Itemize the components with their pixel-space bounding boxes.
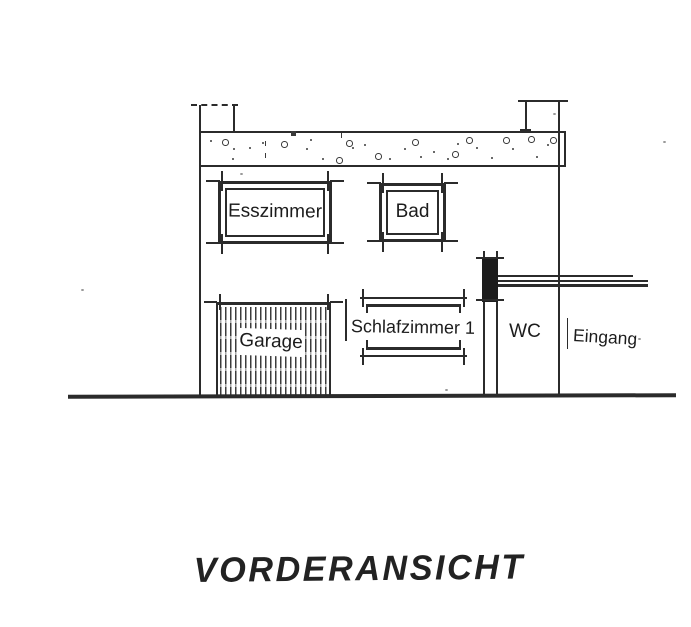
esszimmer-label: Esszimmer [222, 199, 328, 224]
schlafzimmer-window-corner-stub [366, 340, 368, 349]
wall-left-line [199, 105, 201, 397]
wall-right-line [558, 101, 560, 397]
stipple-mark [352, 147, 354, 149]
stipple-mark [336, 157, 343, 164]
stipple-mark [233, 148, 235, 150]
stipple-mark [528, 136, 535, 143]
window-tick [382, 173, 384, 193]
window-tick [463, 289, 465, 307]
noise-speck [240, 173, 243, 175]
window-tick [221, 234, 223, 254]
stipple-mark [550, 137, 557, 144]
garage-label-box: Garage [238, 328, 305, 357]
window-tick [221, 171, 223, 191]
schlafzimmer-window-top-outer-line [360, 297, 467, 299]
stipple-mark [412, 139, 419, 146]
schlafzimmer-window-corner-stub [459, 304, 461, 313]
garage-label: Garage [239, 331, 303, 354]
stipple-mark [512, 148, 514, 150]
roof-band [199, 131, 566, 167]
window-tick [463, 348, 465, 365]
ground-line [68, 393, 676, 398]
entry-post-left-line [483, 302, 485, 397]
stipple-mark [249, 147, 251, 149]
schlafzimmer-window-bottom-inner-line [366, 347, 461, 350]
stipple-mark [433, 151, 435, 153]
window-tick [204, 301, 217, 303]
window-tick [441, 173, 443, 193]
pillar-tick [496, 251, 498, 258]
bad-label: Bad [383, 200, 442, 224]
stipple-mark [503, 137, 510, 144]
elevation-sheet: Esszimmer Bad Garage [0, 0, 691, 627]
noise-speck [553, 113, 556, 115]
window-tick [330, 242, 344, 244]
stipple-mark [547, 144, 549, 146]
stipple-mark [452, 151, 459, 158]
stipple-mark [232, 158, 234, 160]
noise-speck [638, 338, 641, 340]
stipple-mark [364, 144, 366, 146]
stipple-mark [341, 133, 342, 138]
window-tick [444, 240, 458, 242]
window-tick [330, 301, 343, 303]
stipple-mark [447, 158, 449, 160]
stipple-mark [310, 139, 312, 141]
stipple-mark [281, 141, 288, 148]
schlafzimmer-left-separator-line [345, 299, 347, 341]
stipple-mark [420, 156, 422, 158]
stipple-mark [346, 140, 353, 147]
stipple-mark [389, 158, 391, 160]
stipple-mark [491, 157, 493, 159]
schlafzimmer-window-top-inner-line [366, 304, 461, 307]
schlafzimmer1-label: Schlafzimmer 1 [358, 315, 468, 341]
stipple-mark [265, 153, 266, 158]
window-tick [327, 171, 329, 191]
stipple-mark [322, 158, 324, 160]
eingang-label: Eingang [572, 326, 637, 349]
window-tick [206, 180, 220, 182]
noise-speck [81, 289, 84, 291]
drawing-title: VORDERANSICHT [194, 548, 525, 591]
stipple-mark [291, 131, 296, 136]
window-tick [382, 232, 384, 252]
stipple-mark [476, 147, 478, 149]
wc-label: WC [500, 321, 550, 343]
canopy-line [498, 284, 648, 287]
schlafzimmer-window-corner-stub [366, 304, 368, 313]
stipple-mark [375, 153, 382, 160]
chimney-left-right-line [233, 105, 235, 134]
window-tick [367, 182, 381, 184]
entry-post-right-line [496, 302, 498, 397]
canopy-line [498, 275, 633, 277]
schlafzimmer-window-corner-stub [459, 340, 461, 349]
window-tick [327, 234, 329, 254]
pillar-tick [476, 257, 504, 259]
window-tick [206, 242, 220, 244]
garage-door: Garage [216, 302, 331, 397]
window-tick [219, 294, 221, 310]
pillar-tick [476, 299, 504, 301]
window-tick [362, 289, 364, 307]
entry-pillar [482, 258, 498, 302]
window-tick [367, 240, 381, 242]
pillar-tick [483, 251, 485, 258]
window-tick [330, 180, 344, 182]
stipple-mark [262, 142, 264, 144]
front-elevation-drawing: Esszimmer Bad Garage [0, 0, 691, 627]
stipple-mark [210, 140, 212, 142]
stipple-mark [404, 148, 406, 150]
stipple-mark [457, 143, 459, 145]
stipple-mark [306, 148, 308, 150]
canopy-line [498, 280, 648, 282]
eingang-separator-line [567, 318, 568, 349]
noise-speck [445, 389, 448, 391]
window-tick [327, 294, 329, 310]
noise-speck [663, 141, 666, 143]
window-tick [362, 348, 364, 365]
schlafzimmer-window-bottom-outer-line [360, 355, 467, 357]
stipple-mark [466, 137, 473, 144]
stipple-mark [265, 141, 266, 146]
stipple-mark [222, 139, 229, 146]
window-tick [441, 232, 443, 252]
window-tick [444, 182, 458, 184]
stipple-mark [536, 156, 538, 158]
